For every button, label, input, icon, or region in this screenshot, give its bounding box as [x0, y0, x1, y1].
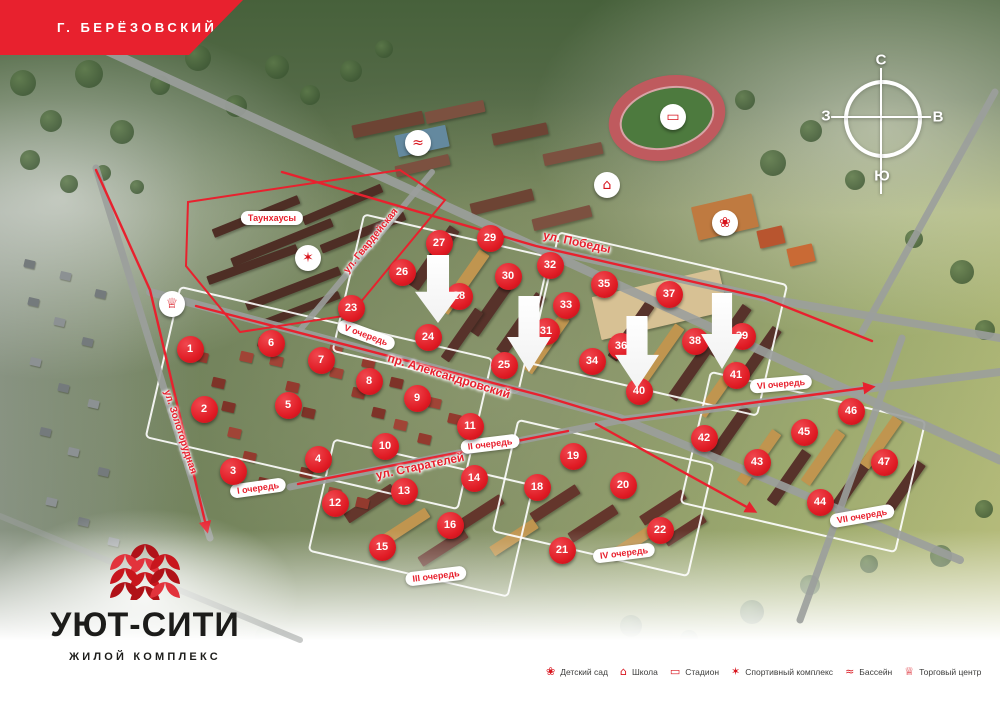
- city-name: Г. БЕРЁЗОВСКИЙ: [57, 0, 217, 55]
- stadium-icon: ▭: [670, 665, 680, 678]
- legend-item-stadium: ▭Стадион: [670, 665, 719, 678]
- poi-stadium-icon[interactable]: ▭: [660, 104, 686, 130]
- village-house: [29, 357, 42, 367]
- legend-item-school: ⌂Школа: [620, 665, 658, 678]
- compass-horizontal-axis: [831, 116, 931, 118]
- village-house: [87, 399, 100, 409]
- legend-label: Школа: [632, 667, 658, 677]
- legend: ❀Детский сад⌂Школа▭Стадион✶Спортивный ко…: [546, 665, 981, 678]
- building-marker-26[interactable]: 26: [389, 259, 416, 286]
- tree: [735, 90, 755, 110]
- village-house: [81, 337, 94, 347]
- tree: [975, 500, 993, 518]
- compass-ring: [844, 80, 922, 158]
- building-marker-9[interactable]: 9: [404, 385, 431, 412]
- logo-subtitle: ЖИЛОЙ КОМПЛЕКС: [30, 651, 260, 663]
- village-house: [53, 317, 66, 327]
- legend-item-mall: ♕Торговый центр: [904, 665, 981, 678]
- building-marker-30[interactable]: 30: [495, 263, 522, 290]
- poi-sport-icon[interactable]: ✶: [295, 245, 321, 271]
- sport-glyph: ✶: [302, 251, 314, 265]
- building-marker-7[interactable]: 7: [308, 347, 335, 374]
- legend-label: Бассейн: [859, 667, 892, 677]
- poi-school-icon[interactable]: ⌂: [594, 172, 620, 198]
- compass-north-label: С: [876, 52, 887, 69]
- village-house: [67, 447, 80, 457]
- village-house: [57, 383, 70, 393]
- legend-item-pool: ≈Бассейн: [845, 665, 892, 678]
- building-marker-25[interactable]: 25: [491, 352, 518, 379]
- tree: [95, 165, 111, 181]
- building-marker-20[interactable]: 20: [610, 472, 637, 499]
- building-row: [756, 225, 785, 248]
- tree: [75, 60, 103, 88]
- tree: [10, 70, 36, 96]
- tree: [950, 260, 974, 284]
- compass-east-label: В: [933, 109, 944, 126]
- tree: [150, 75, 170, 95]
- tree: [975, 320, 995, 340]
- building-row: [542, 142, 603, 166]
- building-marker-37[interactable]: 37: [656, 281, 683, 308]
- school-glyph: ⌂: [603, 178, 612, 192]
- tree: [110, 120, 134, 144]
- village-house: [97, 467, 110, 477]
- building-marker-41[interactable]: 41: [723, 362, 750, 389]
- village-house: [45, 497, 58, 507]
- building-marker-8[interactable]: 8: [356, 368, 383, 395]
- building-row: [469, 188, 534, 215]
- building-row: [424, 100, 485, 124]
- stadium-glyph: ▭: [666, 110, 679, 124]
- pool-icon: ≈: [845, 665, 854, 678]
- building-marker-1[interactable]: 1: [177, 336, 204, 363]
- building-marker-5[interactable]: 5: [275, 392, 302, 419]
- tree: [340, 60, 362, 82]
- legend-label: Спортивный комплекс: [745, 667, 833, 677]
- village-house: [94, 289, 107, 299]
- building-marker-23[interactable]: 23: [338, 295, 365, 322]
- building-marker-46[interactable]: 46: [838, 398, 865, 425]
- building-row: [394, 154, 450, 177]
- building-marker-45[interactable]: 45: [791, 419, 818, 446]
- townhouses-label: Таунхаусы: [241, 211, 303, 225]
- tree: [300, 85, 320, 105]
- building-marker-15[interactable]: 15: [369, 534, 396, 561]
- building-marker-24[interactable]: 24: [415, 324, 442, 351]
- village-house: [39, 427, 52, 437]
- building-marker-3[interactable]: 3: [220, 458, 247, 485]
- building-marker-33[interactable]: 33: [553, 292, 580, 319]
- village-house: [23, 259, 36, 269]
- building-marker-6[interactable]: 6: [258, 330, 285, 357]
- mall-glyph: ♕: [166, 297, 179, 311]
- building-row: [531, 205, 592, 231]
- tree: [760, 150, 786, 176]
- logo-title: УЮТ-СИТИ: [30, 606, 260, 645]
- building-row: [786, 243, 815, 266]
- tree: [375, 40, 393, 58]
- tree: [60, 175, 78, 193]
- building-marker-38[interactable]: 38: [682, 328, 709, 355]
- tree: [40, 110, 62, 132]
- building-marker-18[interactable]: 18: [524, 474, 551, 501]
- tree: [130, 180, 144, 194]
- compass-rose: С В Ю З: [815, 42, 955, 192]
- building-marker-14[interactable]: 14: [461, 465, 488, 492]
- kindergarten-icon: ❀: [546, 665, 555, 678]
- building-marker-29[interactable]: 29: [477, 225, 504, 252]
- building-marker-34[interactable]: 34: [579, 348, 606, 375]
- legend-item-sport: ✶Спортивный комплекс: [731, 665, 833, 678]
- masterplan-page: ул. Победыул. Гвардейскаяпр. Александров…: [0, 0, 1000, 707]
- building-marker-21[interactable]: 21: [549, 537, 576, 564]
- legend-label: Стадион: [685, 667, 719, 677]
- legend-item-kindergarten: ❀Детский сад: [546, 665, 608, 678]
- building-marker-47[interactable]: 47: [871, 449, 898, 476]
- building-marker-12[interactable]: 12: [322, 490, 349, 517]
- poi-pool-icon[interactable]: ≈: [405, 130, 431, 156]
- building-marker-11[interactable]: 11: [457, 413, 484, 440]
- compass-south-label: Ю: [874, 168, 889, 185]
- tree: [225, 95, 247, 117]
- building-marker-19[interactable]: 19: [560, 443, 587, 470]
- school-icon: ⌂: [620, 665, 627, 678]
- sport-icon: ✶: [731, 665, 740, 678]
- building-marker-32[interactable]: 32: [537, 252, 564, 279]
- building-marker-27[interactable]: 27: [426, 230, 453, 257]
- pool-glyph: ≈: [412, 136, 424, 150]
- building-row: [491, 122, 548, 145]
- building-marker-13[interactable]: 13: [391, 478, 418, 505]
- poi-kindergarten-icon[interactable]: ❀: [712, 210, 738, 236]
- legend-label: Торговый центр: [919, 667, 981, 677]
- building-marker-35[interactable]: 35: [591, 271, 618, 298]
- mall-icon: ♕: [904, 665, 914, 678]
- tree: [905, 230, 923, 248]
- tree: [20, 150, 40, 170]
- village-house: [27, 297, 40, 307]
- poi-mall-icon[interactable]: ♕: [159, 291, 185, 317]
- building-marker-22[interactable]: 22: [647, 517, 674, 544]
- tree: [265, 55, 289, 79]
- building-marker-10[interactable]: 10: [372, 433, 399, 460]
- village-house: [59, 271, 72, 281]
- logo-block: УЮТ-СИТИ ЖИЛОЙ КОМПЛЕКС: [30, 538, 260, 663]
- building-marker-16[interactable]: 16: [437, 512, 464, 539]
- building-marker-43[interactable]: 43: [744, 449, 771, 476]
- logo-wheat-emblem: [106, 538, 184, 600]
- legend-label: Детский сад: [560, 667, 608, 677]
- building-marker-44[interactable]: 44: [807, 489, 834, 516]
- building-marker-42[interactable]: 42: [691, 425, 718, 452]
- compass-west-label: З: [821, 108, 830, 125]
- building-marker-2[interactable]: 2: [191, 396, 218, 423]
- kindergarten-glyph: ❀: [719, 216, 731, 230]
- building-marker-4[interactable]: 4: [305, 446, 332, 473]
